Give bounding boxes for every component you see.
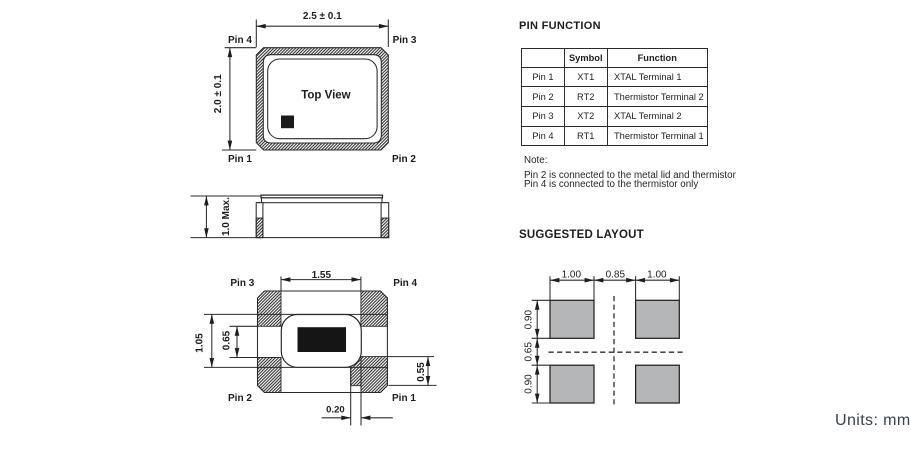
svg-text:1.00: 1.00 — [647, 270, 667, 281]
svg-text:Pin 2: Pin 2 — [228, 393, 252, 404]
svg-text:Pin 4: Pin 4 — [393, 278, 417, 289]
svg-text:Pin 4: Pin 4 — [228, 35, 252, 46]
svg-text:Pin 1: Pin 1 — [228, 154, 252, 165]
svg-text:0.20: 0.20 — [326, 404, 345, 415]
svg-text:0.65: 0.65 — [524, 342, 535, 362]
svg-text:Top View: Top View — [301, 90, 350, 102]
svg-text:0.90: 0.90 — [524, 374, 535, 394]
svg-text:0.85: 0.85 — [606, 270, 626, 281]
svg-text:Pin 1: Pin 1 — [392, 393, 416, 404]
svg-text:0.65: 0.65 — [221, 330, 232, 350]
svg-text:Pin 3: Pin 3 — [230, 278, 254, 289]
svg-text:Pin 2: Pin 2 — [392, 154, 416, 165]
svg-text:1.00: 1.00 — [562, 270, 582, 281]
svg-text:1.0 Max.: 1.0 Max. — [221, 197, 232, 236]
svg-text:0.90: 0.90 — [524, 310, 535, 330]
svg-text:1.55: 1.55 — [312, 270, 332, 281]
svg-text:2.5 ± 0.1: 2.5 ± 0.1 — [303, 11, 342, 22]
svg-text:Pin 3: Pin 3 — [393, 35, 417, 46]
svg-text:1.05: 1.05 — [195, 333, 206, 353]
svg-text:0.55: 0.55 — [416, 362, 427, 382]
svg-text:2.0 ± 0.1: 2.0 ± 0.1 — [213, 74, 224, 113]
